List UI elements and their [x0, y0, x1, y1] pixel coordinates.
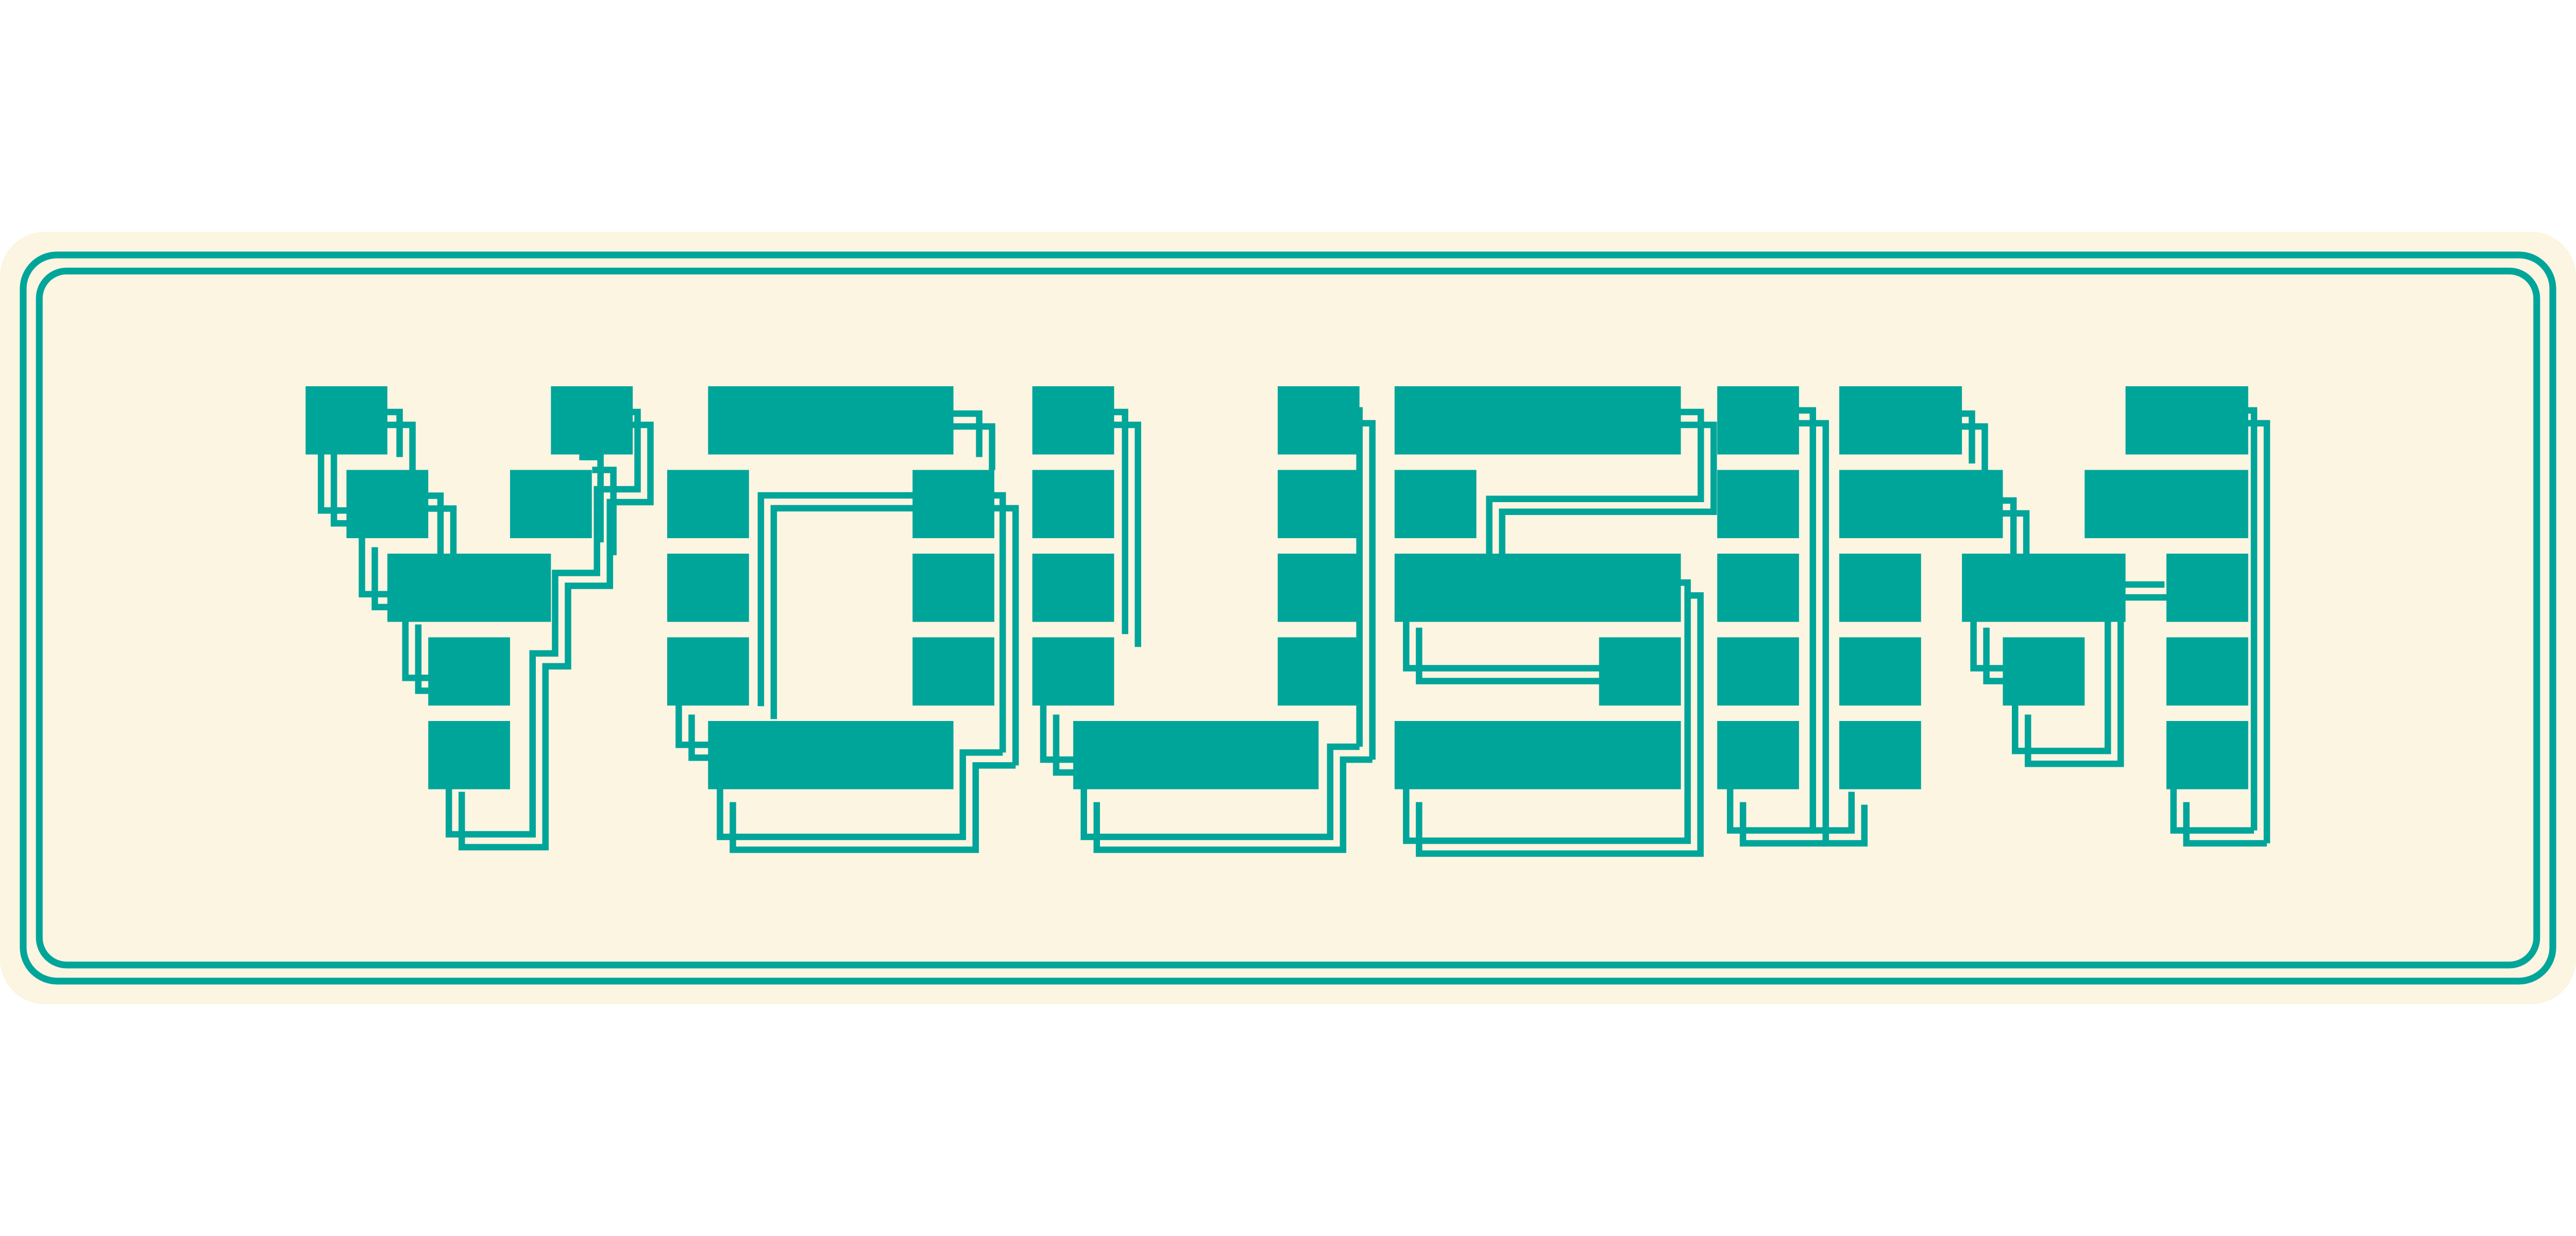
letter-block — [912, 638, 994, 706]
letter-block — [387, 554, 551, 622]
letter-block — [1839, 554, 1921, 622]
letter-block — [1839, 386, 1962, 455]
letter-block — [667, 554, 749, 622]
letter-block — [1717, 386, 1799, 455]
letter-block — [1032, 470, 1114, 539]
letter-block — [1839, 721, 1921, 789]
letter-block — [551, 386, 633, 455]
letter-block — [1839, 470, 2003, 539]
yousim-logo: YOUSIM — [0, 0, 2576, 1236]
letter-block — [1717, 470, 1799, 539]
letter-block — [2166, 554, 2248, 622]
letter-block — [2003, 638, 2085, 706]
letter-block — [1717, 638, 1799, 706]
letter-block — [912, 470, 994, 539]
letter-block — [1032, 386, 1114, 455]
letter-block — [1395, 386, 1681, 455]
letter-block — [708, 386, 953, 455]
letter-block — [1395, 470, 1477, 539]
letter-block — [2084, 470, 2248, 539]
letter-block — [1032, 638, 1114, 706]
letter-block — [1278, 638, 1360, 706]
letter-block — [1599, 638, 1681, 706]
letter-block — [1717, 554, 1799, 622]
letter-block — [912, 554, 994, 622]
letter-block — [2166, 638, 2248, 706]
letter-block — [1717, 721, 1799, 789]
letter-block — [1395, 721, 1681, 789]
letter-block — [1839, 638, 1921, 706]
letter-block — [347, 470, 429, 539]
letter-block — [510, 470, 592, 539]
letter-block — [2166, 721, 2248, 789]
letter-block — [306, 386, 387, 455]
letter-block — [1278, 386, 1360, 455]
letter-block — [428, 721, 510, 789]
letter-block — [1032, 554, 1114, 622]
letter-block — [1278, 470, 1360, 539]
letter-block — [1395, 554, 1681, 622]
letter-block — [2126, 386, 2248, 455]
letter-block — [708, 721, 953, 789]
letter-block — [1073, 721, 1318, 789]
letter-block — [667, 470, 749, 539]
page-background: YOUSIM YOUSIM — [0, 0, 2576, 1236]
letter-block — [1962, 554, 2126, 622]
letter-block — [667, 638, 749, 706]
letter-block — [428, 638, 510, 706]
letter-block — [1278, 554, 1360, 622]
